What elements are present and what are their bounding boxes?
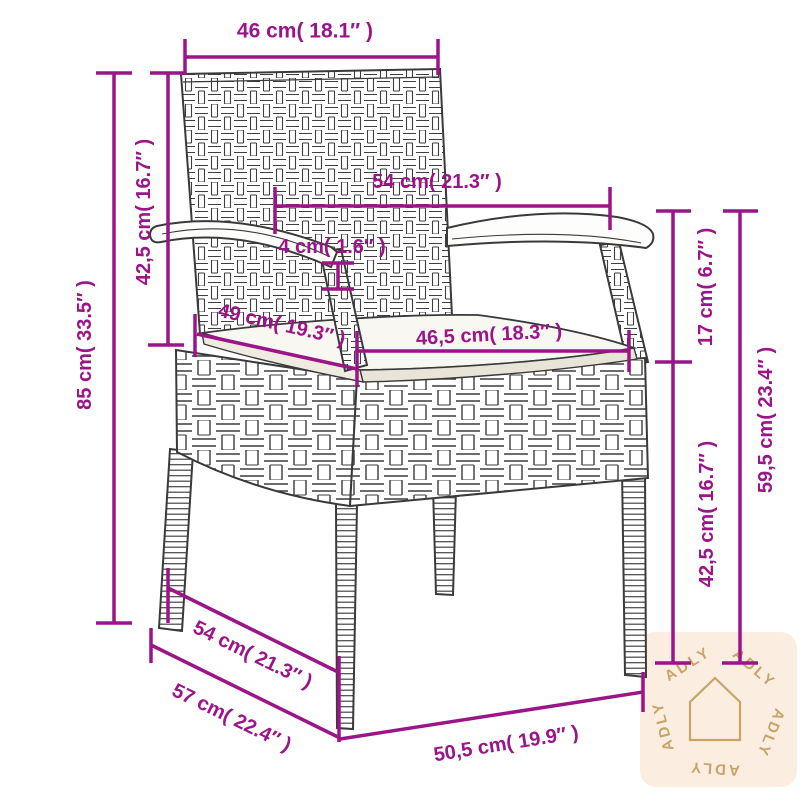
brand-ring-text: ADLY [688,758,741,779]
dim-armrest-height-label: 59,5 cm( 23.4″ ) [755,347,777,493]
dimension-diagram: ADLY ADLY ADLY ADLY ADLY [0,0,800,800]
chair-leg-front-left [159,449,193,631]
dim-base-width-label: 50,5 cm( 19.9″ ) [432,722,580,767]
dim-right-inner-line [655,211,692,663]
dim-base-width-line [340,672,643,739]
dim-armrest-thickness-label: 4 cm( 1.6″ ) [278,236,385,258]
chair-backrest [181,69,452,334]
dim-total-height-label: 85 cm( 33.5″ ) [74,280,96,410]
chair-leg-back-center [433,487,456,595]
dim-right-outer-line [722,211,758,663]
dim-seat-height-label: 42,5 cm( 16.7″ ) [696,441,718,587]
dim-armrest-above-seat-label: 17 cm( 6.7″ ) [695,228,717,347]
dim-total-height-line [96,73,132,623]
dim-backrest-height-label: 42,5 cm( 16.7″ ) [133,139,155,285]
brand-watermark: ADLY ADLY ADLY ADLY ADLY [640,632,797,787]
dim-back-width-label: 46 cm( 18.1″ ) [237,19,373,42]
dim-armrest-span-label: 54 cm( 21.3″ ) [372,171,502,193]
diagram-canvas: ADLY ADLY ADLY ADLY ADLY [0,0,800,800]
chair-leg-right [622,469,646,677]
right-armrest [447,213,653,248]
dim-total-depth-label: 57 cm( 22.4″ ) [168,680,294,757]
